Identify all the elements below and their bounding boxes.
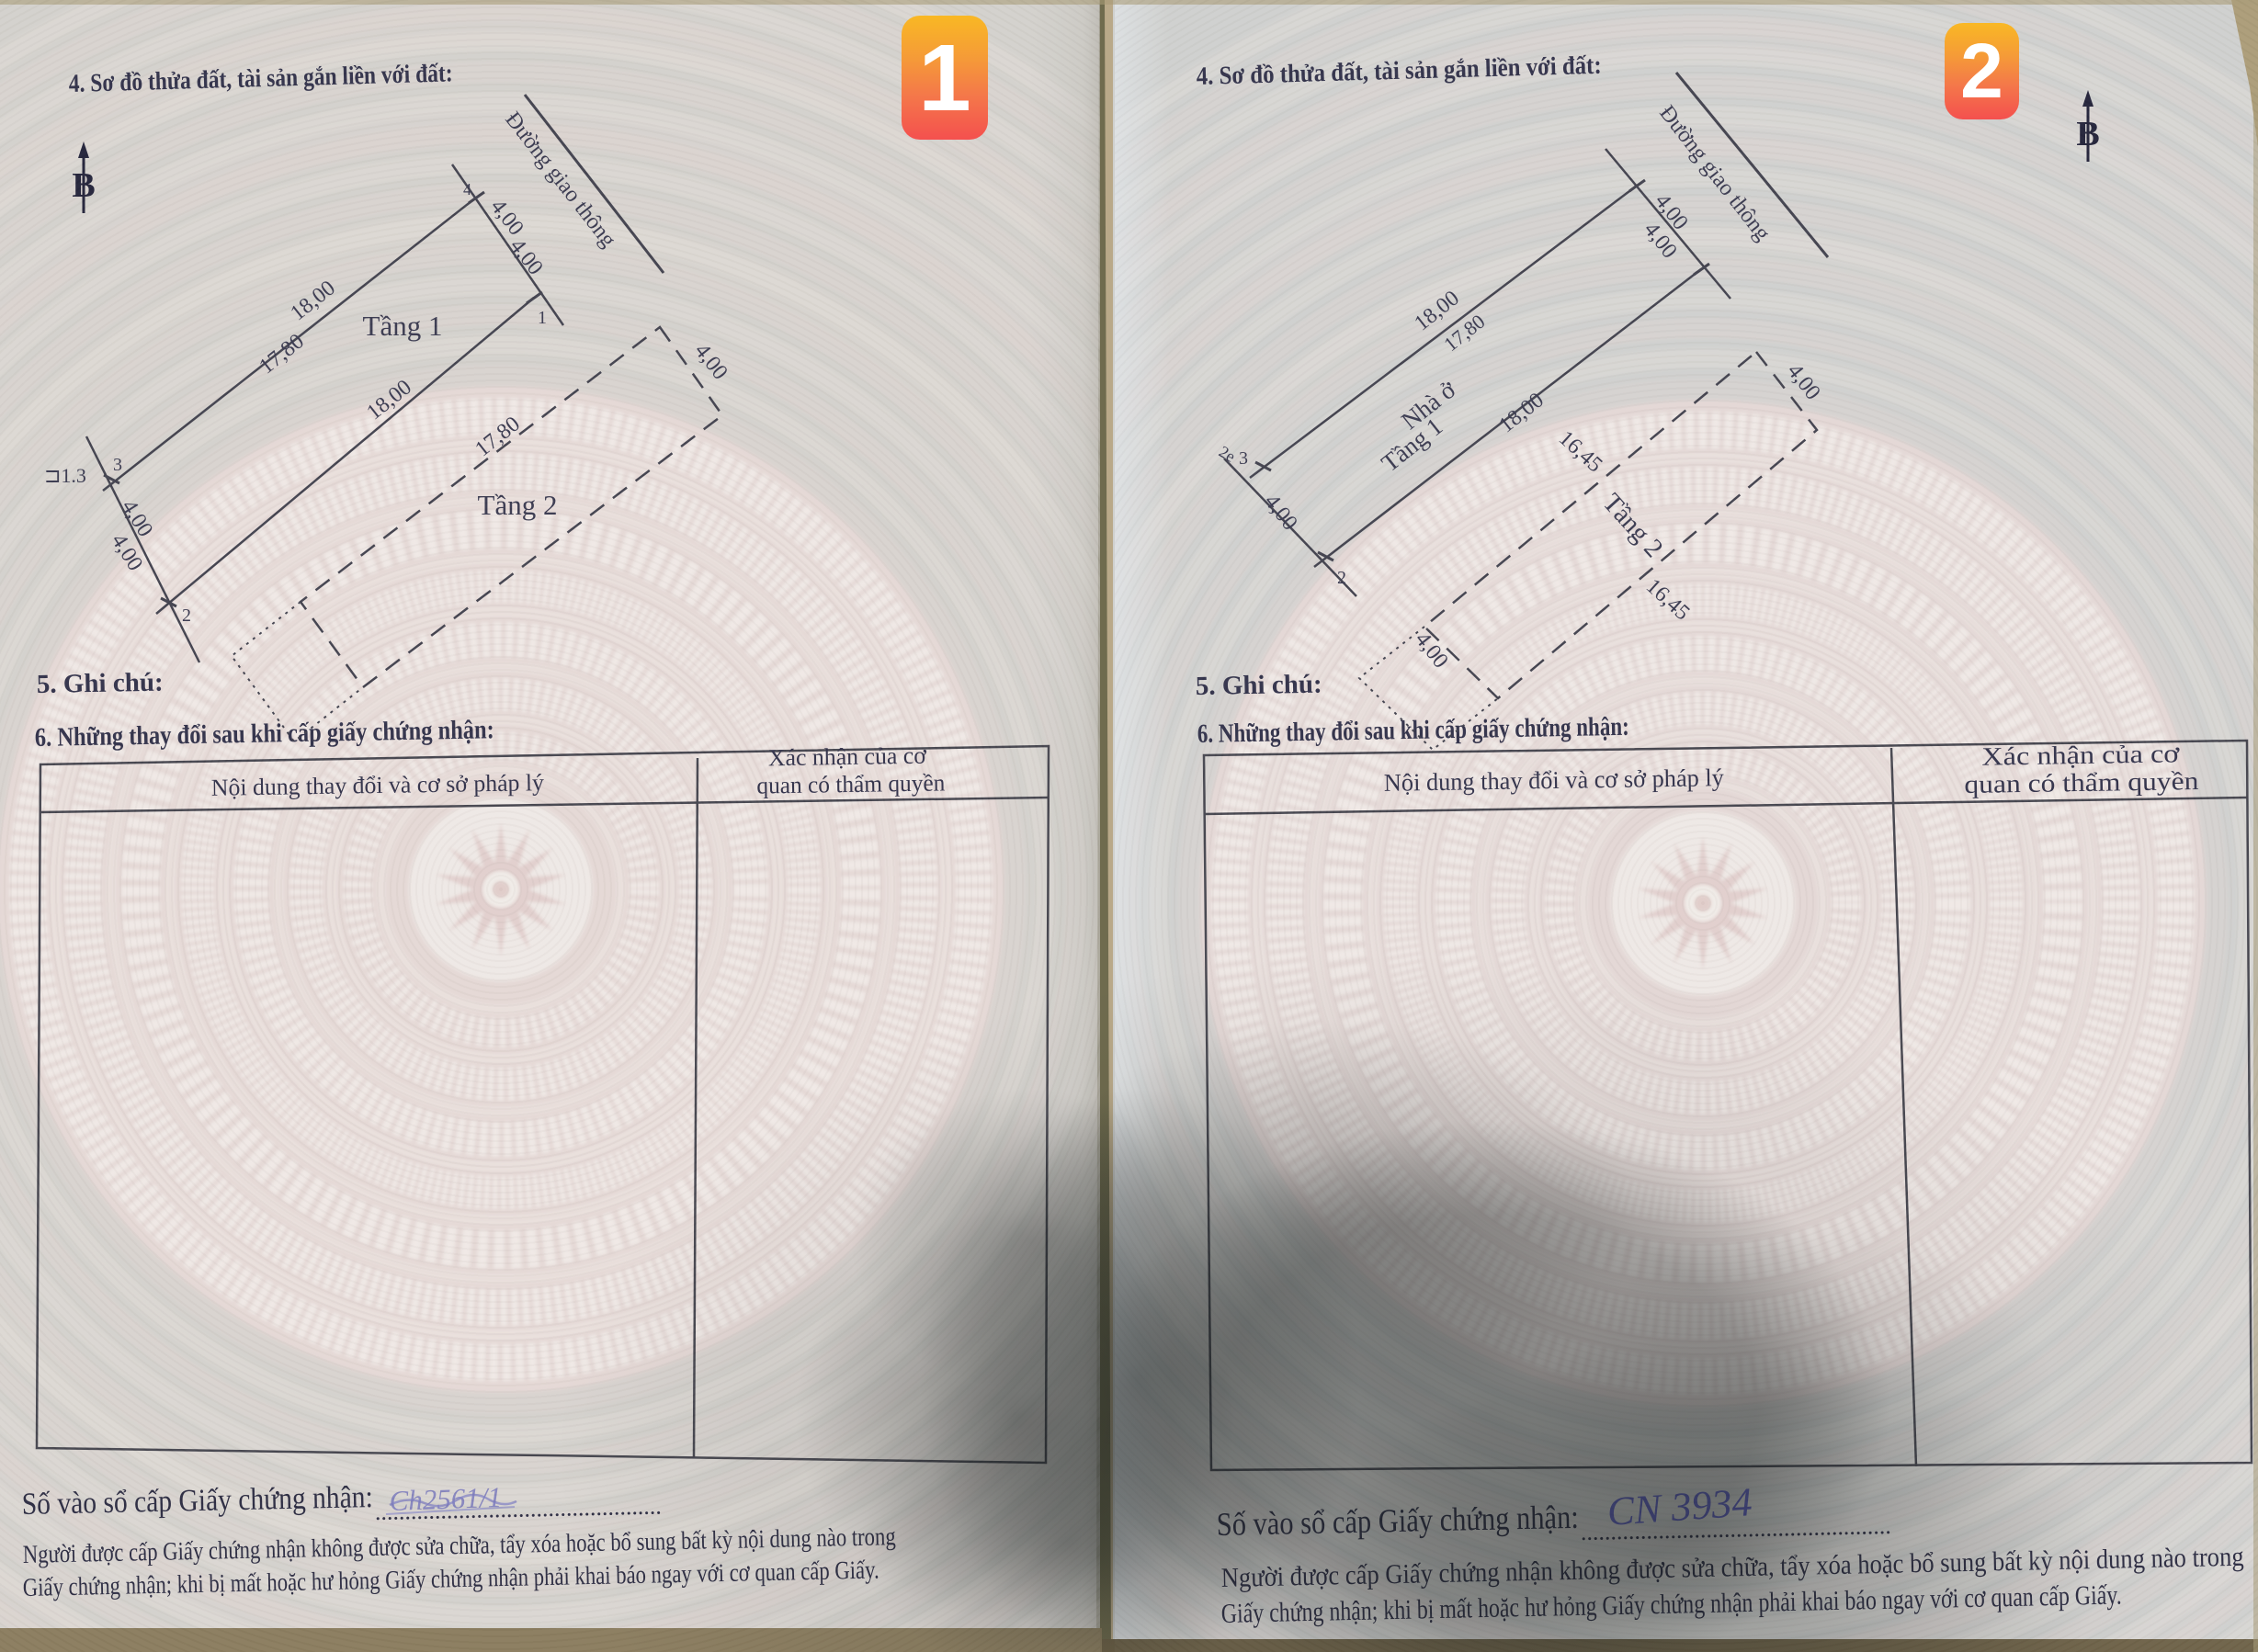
svg-text:Xác nhận của cơ: Xác nhận của cơ [1981, 740, 2181, 771]
svg-text:5. Ghi chú:: 5. Ghi chú: [1196, 670, 1322, 701]
svg-text:Nội dung thay đổi và cơ sở phá: Nội dung thay đổi và cơ sở pháp lý [211, 769, 544, 801]
svg-text:2: 2 [1337, 568, 1346, 588]
svg-text:2: 2 [182, 605, 191, 626]
svg-text:3: 3 [113, 455, 122, 475]
svg-text:Tầng 1: Tầng 1 [363, 310, 443, 342]
svg-text:5. Ghi chú:: 5. Ghi chú: [37, 668, 164, 699]
svg-text:quan có thẩm quyền: quan có thẩm quyền [756, 769, 945, 798]
svg-text:B: B [72, 166, 95, 205]
svg-text:3: 3 [1239, 448, 1248, 469]
svg-text:4: 4 [463, 180, 471, 198]
svg-text:B: B [2076, 115, 2099, 153]
svg-text:1: 1 [538, 308, 547, 328]
svg-text:Nội dung thay đổi và cơ sở phá: Nội dung thay đổi và cơ sở pháp lý [1384, 764, 1725, 797]
svg-text:⊐1.3: ⊐1.3 [44, 464, 86, 487]
svg-text:Xác nhận của cơ: Xác nhận của cơ [768, 742, 928, 772]
svg-text:Số vào sổ cấp Giấy chứng nhận:: Số vào sổ cấp Giấy chứng nhận: [1216, 1499, 1579, 1543]
svg-text:Tầng 2: Tầng 2 [478, 489, 558, 521]
svg-text:quan có thẩm quyền: quan có thẩm quyền [1964, 767, 2198, 799]
